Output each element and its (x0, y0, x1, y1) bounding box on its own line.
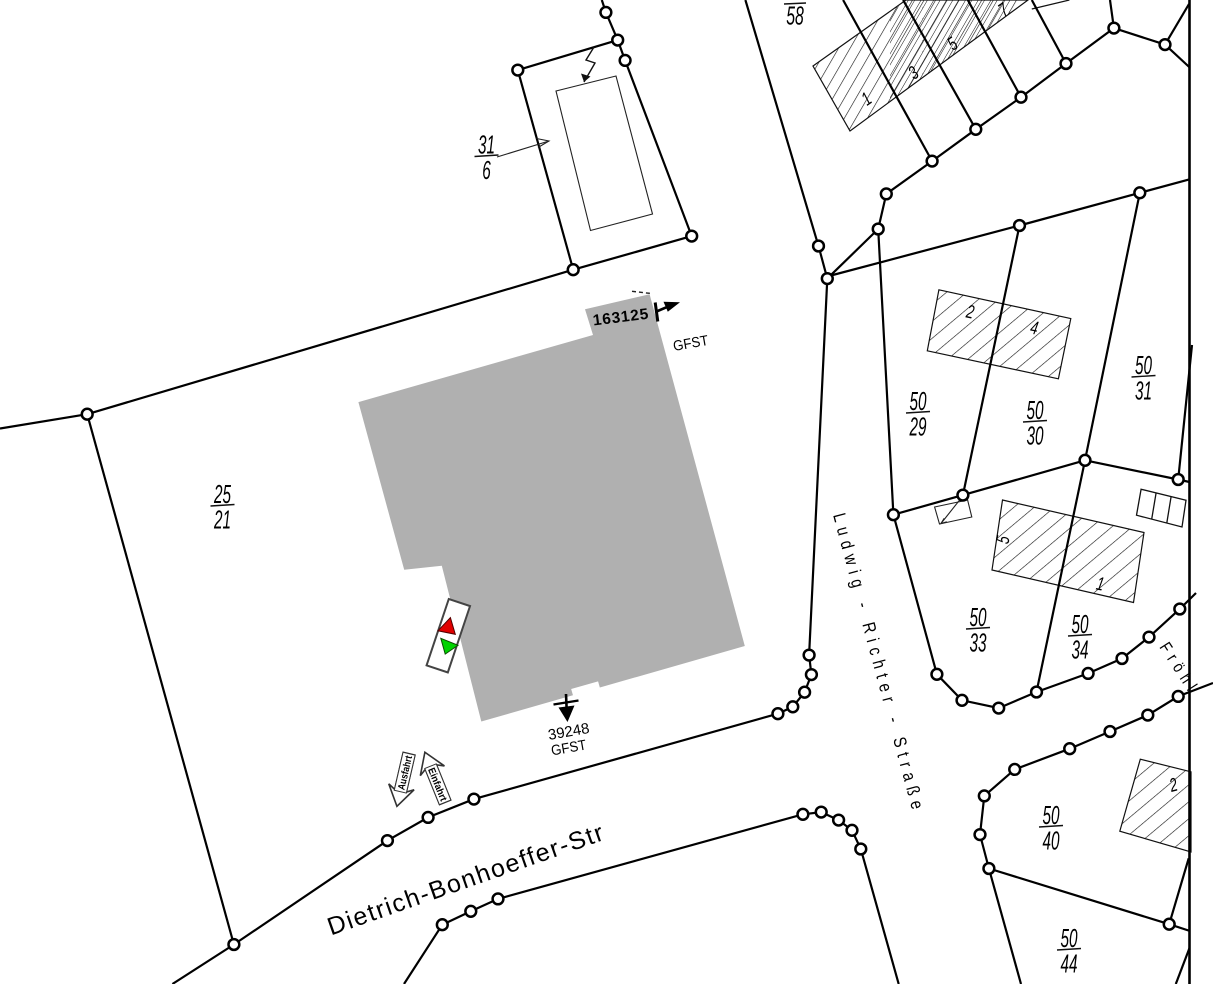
svg-text:58: 58 (786, 3, 804, 31)
svg-text:6: 6 (482, 157, 491, 185)
svg-text:40: 40 (1042, 828, 1059, 856)
svg-text:33: 33 (969, 630, 986, 658)
svg-text:21: 21 (213, 507, 231, 535)
svg-text:34: 34 (1071, 637, 1088, 665)
svg-text:31: 31 (1135, 378, 1152, 406)
svg-text:44: 44 (1060, 951, 1077, 979)
svg-text:30: 30 (1026, 423, 1043, 451)
svg-text:29: 29 (909, 414, 927, 442)
